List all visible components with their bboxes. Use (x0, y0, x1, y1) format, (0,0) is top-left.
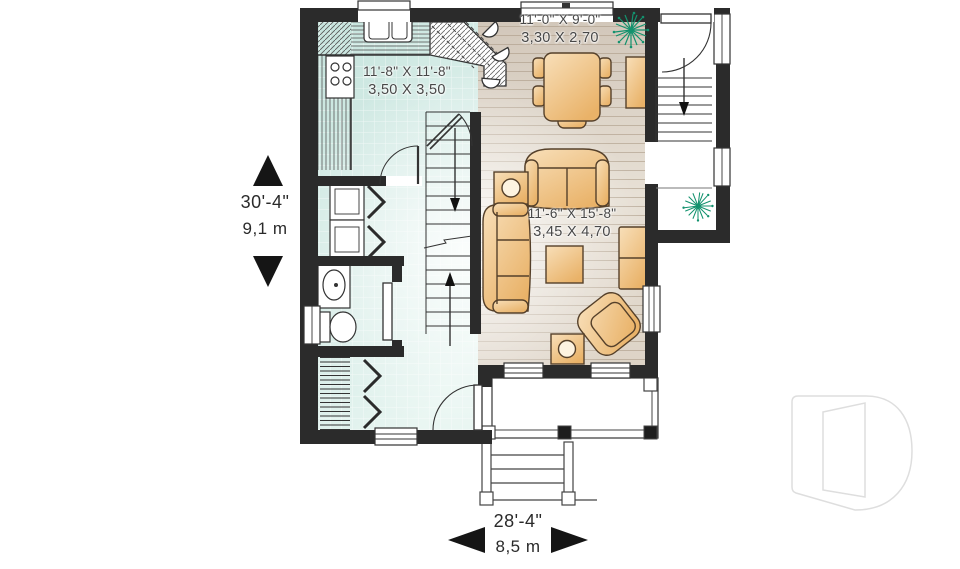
living-dimensions-label: 11'-6" X 15'-8" 3,45 X 4,70 (514, 204, 630, 242)
bathroom-fixtures (318, 262, 356, 342)
up-arrow-icon (253, 155, 283, 186)
dining-table (533, 53, 611, 128)
loveseat (525, 149, 609, 209)
overall-width-imperial: 28'-4" (482, 511, 554, 532)
dining-dimensions-label: 11'-0" X 9'-0" 3,30 X 2,70 (502, 10, 618, 48)
end-table-lamp (551, 334, 584, 364)
sideboard (626, 57, 646, 108)
porch-steps (480, 442, 597, 505)
living-front-window (591, 363, 630, 378)
foyer-window (375, 428, 417, 445)
overall-height-imperial: 30'-4" (226, 192, 304, 213)
dining-imperial-dimension: 11'-0" X 9'-0" (502, 10, 618, 29)
coffee-table (546, 246, 583, 283)
porch-post (644, 378, 657, 391)
vestibule-floor (658, 22, 716, 230)
overall-height-metric: 9,1 m (226, 219, 304, 239)
kitchen-imperial-dimension: 11'-8" X 11'-8" (346, 62, 468, 81)
floor-plan-canvas: 11'-8" X 11'-8" 3,50 X 3,50 11'-0" X 9'-… (0, 0, 960, 569)
closet-rod-hatch (320, 356, 350, 430)
end-table-lamp (494, 172, 528, 204)
porch-post (558, 426, 571, 439)
floor-plan-drawing (0, 0, 960, 569)
kitchen-metric-dimension: 3,50 X 3,50 (346, 81, 468, 100)
porch-post (644, 426, 657, 439)
kitchen-sink-window (358, 1, 410, 22)
laundry-appliances (330, 182, 364, 258)
kitchen-dimensions-label: 11'-8" X 11'-8" 3,50 X 3,50 (346, 62, 468, 100)
living-side-window (643, 286, 660, 332)
living-metric-dimension: 3,45 X 4,70 (514, 223, 630, 242)
toilet-bowl (330, 312, 356, 342)
dining-vestibule-opening (645, 142, 658, 184)
overall-width-metric: 8,5 m (482, 537, 554, 557)
living-front-window (504, 363, 543, 378)
drummond-logo (792, 396, 912, 510)
left-arrow-icon (448, 527, 485, 553)
dining-metric-dimension: 3,30 X 2,70 (502, 29, 618, 48)
porch (480, 378, 658, 505)
right-arrow-icon (551, 527, 588, 553)
bathroom-door (383, 283, 392, 340)
kitchen-hall-opening (386, 176, 422, 186)
down-arrow-icon (253, 256, 283, 287)
living-imperial-dimension: 11'-6" X 15'-8" (514, 204, 630, 223)
